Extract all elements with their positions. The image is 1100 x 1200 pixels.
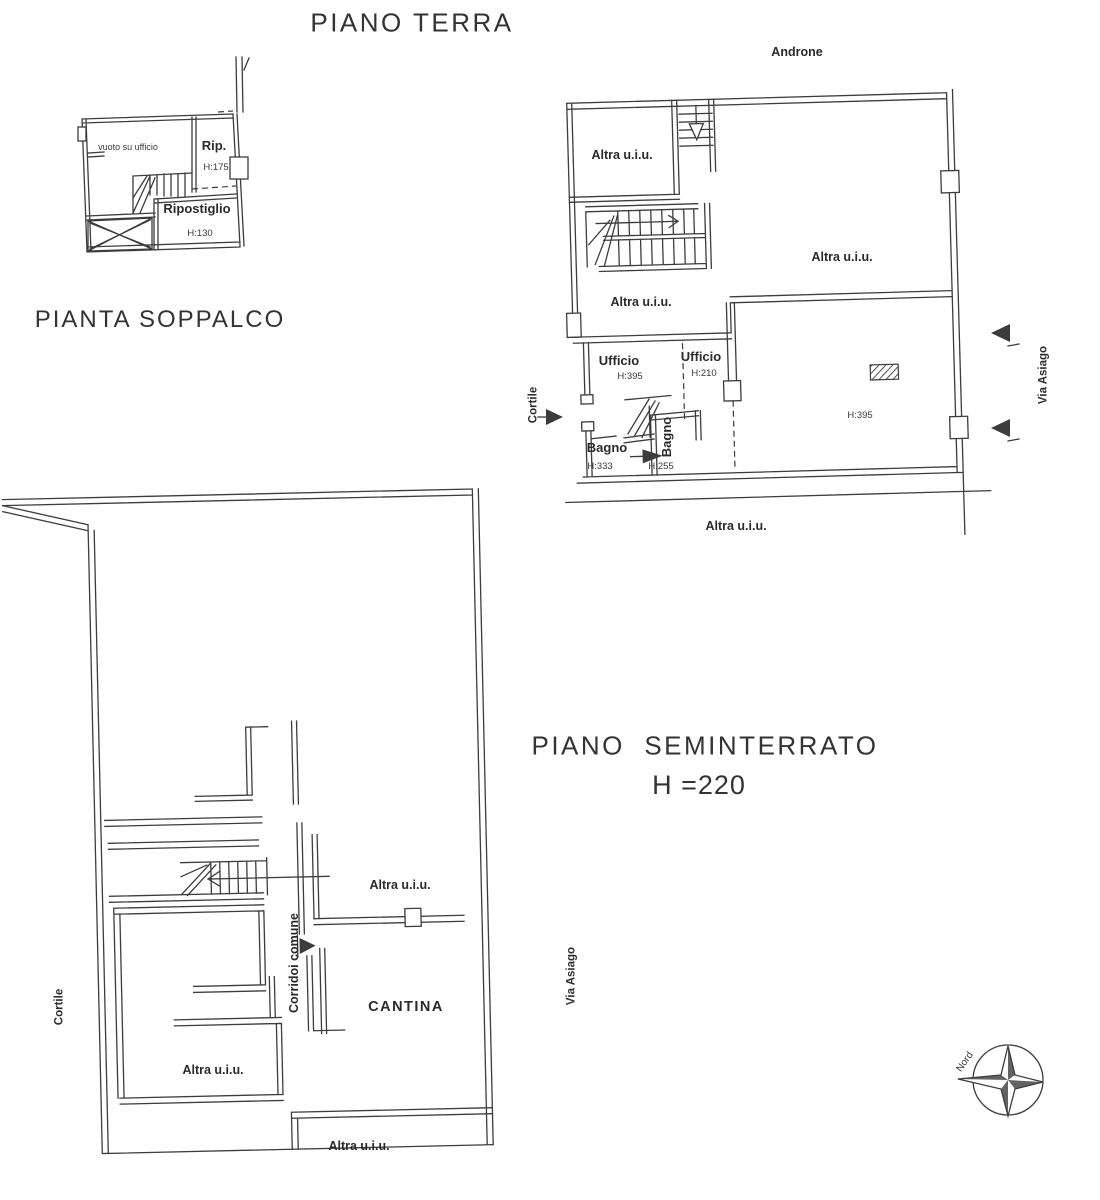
room-height-rip: H:175 — [203, 163, 228, 173]
wall-opening — [724, 381, 742, 401]
cortile-entrance-arrow-icon — [538, 409, 563, 425]
via-asiago-entrance-arrow-icon — [991, 324, 1019, 346]
via-asiago-entrance-arrow-icon — [991, 419, 1019, 441]
room-label-ripostiglio: Ripostiglio — [163, 202, 230, 216]
room-label-altra-top-left: Altra u.i.u. — [591, 149, 652, 163]
wall-column — [230, 157, 248, 179]
wall-opening — [567, 313, 582, 337]
window-block — [941, 170, 960, 192]
piano-terra-title: PIANO TERRA — [310, 9, 513, 38]
room-label-ufficio-1: Ufficio — [599, 354, 639, 368]
soppalco-floorplan — [78, 57, 249, 252]
floor-plan-linework — [0, 0, 1100, 1200]
street-label-cortile-terra: Cortile — [528, 387, 541, 423]
seminterrato-height: H =220 — [652, 771, 746, 801]
seminterrato-staircase-icon — [181, 856, 330, 896]
room-label-bagno-2: Bagno — [660, 417, 674, 457]
main-staircase-icon — [586, 203, 712, 271]
stair-down-arrow-icon — [689, 106, 704, 140]
room-height-bagno-2: H:255 — [648, 462, 673, 472]
room-label-altra-right: Altra u.i.u. — [811, 251, 872, 265]
room-height-ripostiglio: H:130 — [187, 229, 212, 239]
piano-seminterrato-title: PIANO SEMINTERRATO — [531, 732, 878, 761]
room-label-ufficio-2: Ufficio — [681, 350, 721, 364]
street-label-via-asiago-terra: Via Asiago — [1038, 346, 1051, 404]
room-label-altra-sem-top: Altra u.i.u. — [369, 879, 430, 893]
room-label-vuoto: vuoto su ufficio — [98, 143, 158, 153]
area-label-androne: Androne — [771, 46, 822, 60]
room-label-bagno-1: Bagno — [587, 441, 627, 455]
wall-column — [78, 127, 86, 141]
door-pillar — [405, 908, 421, 926]
room-label-rip: Rip. — [202, 139, 227, 153]
room-label-cantina: CANTINA — [368, 1000, 444, 1016]
corridor-label: Corridoi comune — [288, 913, 302, 1013]
room-label-altra-bottom: Altra u.i.u. — [705, 520, 766, 534]
seminterrato-floorplan — [2, 489, 493, 1156]
room-label-altra-sem-bottom: Altra u.i.u. — [328, 1140, 389, 1154]
window-block — [950, 416, 969, 438]
room-height-bagno-1: H:333 — [587, 462, 612, 472]
room-label-altra-mid: Altra u.i.u. — [610, 296, 671, 310]
room-height-ufficio-2: H:210 — [691, 369, 716, 379]
hatched-column-icon — [870, 364, 898, 380]
door-post — [582, 422, 594, 431]
pianta-soppalco-title: PIANTA SOPPALCO — [35, 307, 286, 333]
room-label-altra-sem-left: Altra u.i.u. — [182, 1064, 243, 1078]
street-label-cortile-sem: Cortile — [54, 989, 67, 1025]
street-label-via-asiago-sem: Via Asiago — [566, 947, 579, 1005]
room-height-sala: H:395 — [847, 411, 872, 421]
floor-plan-document: PIANO TERRA PIANTA SOPPALCO PIANO SEMINT… — [0, 0, 1100, 1200]
door-post — [581, 395, 593, 404]
room-height-ufficio-1: H:395 — [617, 372, 642, 382]
